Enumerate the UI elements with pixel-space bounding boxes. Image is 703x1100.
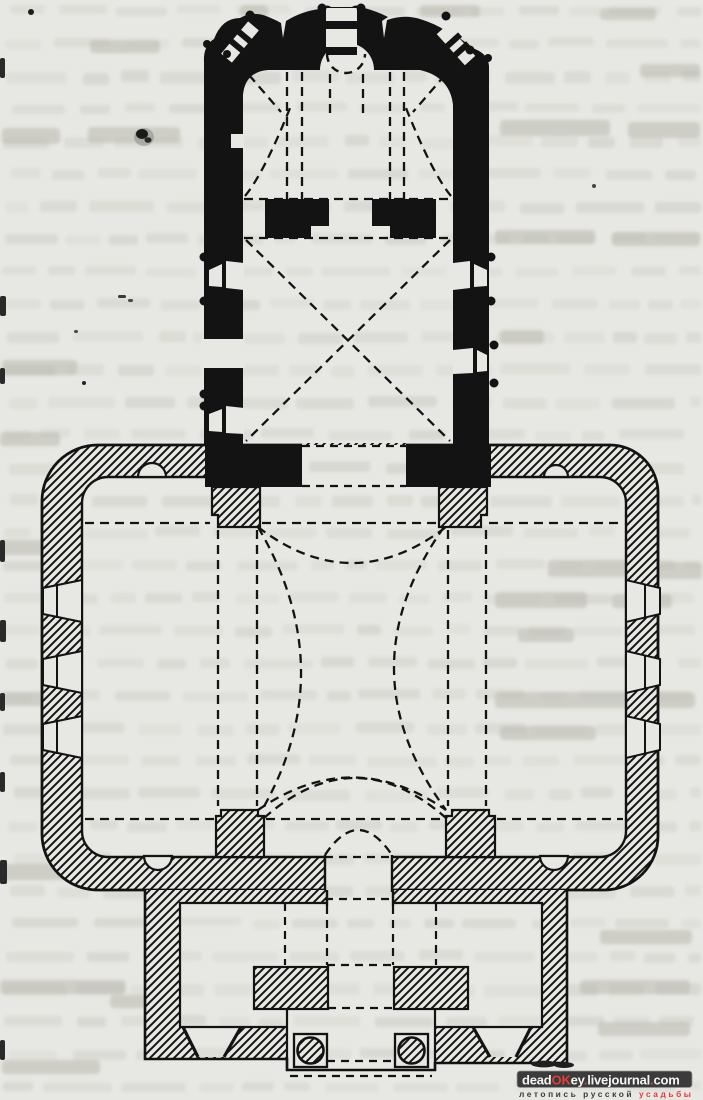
svg-text:deadOKey.livejournal.com: deadOKey.livejournal.com <box>522 1073 680 1088</box>
svg-text:летопись русской усадьбы: летопись русской усадьбы <box>519 1089 694 1099</box>
